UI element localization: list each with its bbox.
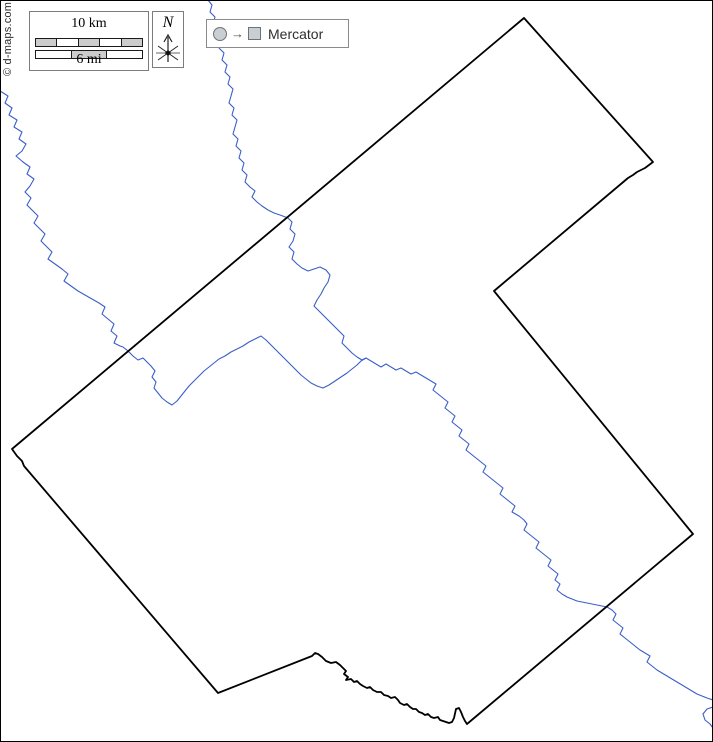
river: [208, 0, 366, 360]
river: [0, 91, 713, 700]
scale-km-label: 10 km: [30, 16, 148, 31]
projection-chip: → Mercator: [206, 19, 349, 48]
copyright-credit: © d-maps.com: [2, 2, 14, 76]
county-boundary: [12, 18, 693, 724]
globe-circle-icon: [213, 27, 227, 41]
arrow-right-icon: →: [231, 28, 244, 40]
map-canvas: [0, 0, 713, 742]
projected-square-icon: [248, 27, 261, 40]
map-page: 10 km 6 mi N → Mercator © d-maps.com: [0, 0, 713, 742]
scale-segment: [36, 39, 56, 46]
scale-segment: [78, 39, 99, 46]
north-arrow: N: [152, 11, 184, 68]
compass-star-icon: [154, 32, 182, 64]
scale-bar: 10 km 6 mi: [29, 11, 149, 71]
river: [703, 707, 713, 728]
north-label: N: [153, 14, 183, 32]
scale-segment: [99, 39, 120, 46]
scale-km-bar: [35, 38, 143, 47]
scale-segment: [56, 39, 77, 46]
scale-segment: [121, 39, 142, 46]
projection-name: Mercator: [268, 26, 323, 42]
scale-mi-label: 6 mi: [30, 52, 148, 67]
